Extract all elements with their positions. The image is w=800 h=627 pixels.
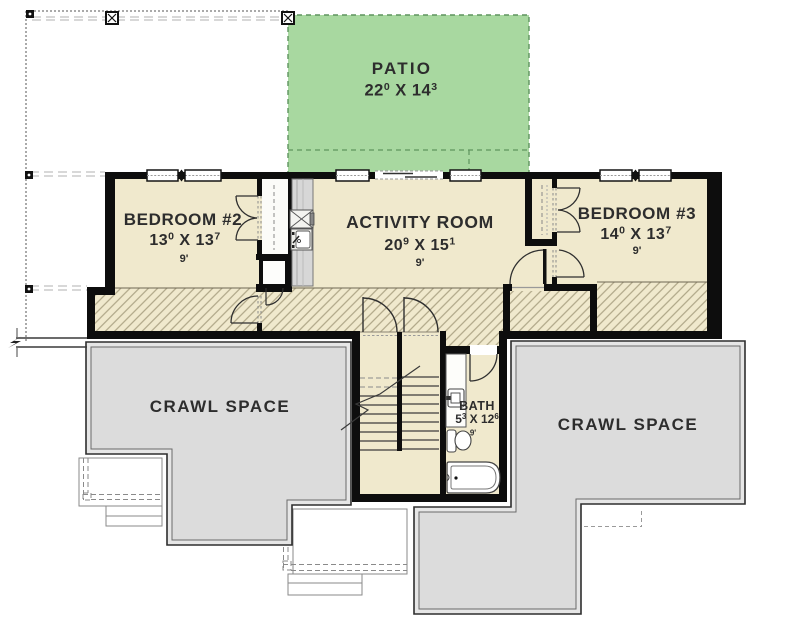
svg-text:ACTIVITY ROOM: ACTIVITY ROOM — [346, 212, 494, 232]
svg-text:130 X 137: 130 X 137 — [149, 231, 220, 250]
svg-text:CRAWL SPACE: CRAWL SPACE — [558, 415, 699, 434]
svg-text:CRAWL SPACE: CRAWL SPACE — [150, 397, 291, 416]
svg-text:9': 9' — [470, 429, 476, 438]
svg-text:BEDROOM #2: BEDROOM #2 — [124, 210, 242, 229]
svg-text:9': 9' — [180, 253, 189, 265]
svg-text:209 X 151: 209 X 151 — [384, 236, 455, 255]
svg-text:220 X 143: 220 X 143 — [364, 81, 437, 100]
svg-text:BATH: BATH — [459, 399, 495, 413]
svg-text:53 X 126: 53 X 126 — [455, 412, 499, 426]
svg-text:PATIO: PATIO — [372, 59, 432, 78]
svg-text:9': 9' — [416, 257, 425, 269]
svg-text:BEDROOM #3: BEDROOM #3 — [578, 204, 696, 223]
svg-text:140 X 137: 140 X 137 — [600, 225, 671, 244]
svg-text:9': 9' — [633, 245, 642, 257]
